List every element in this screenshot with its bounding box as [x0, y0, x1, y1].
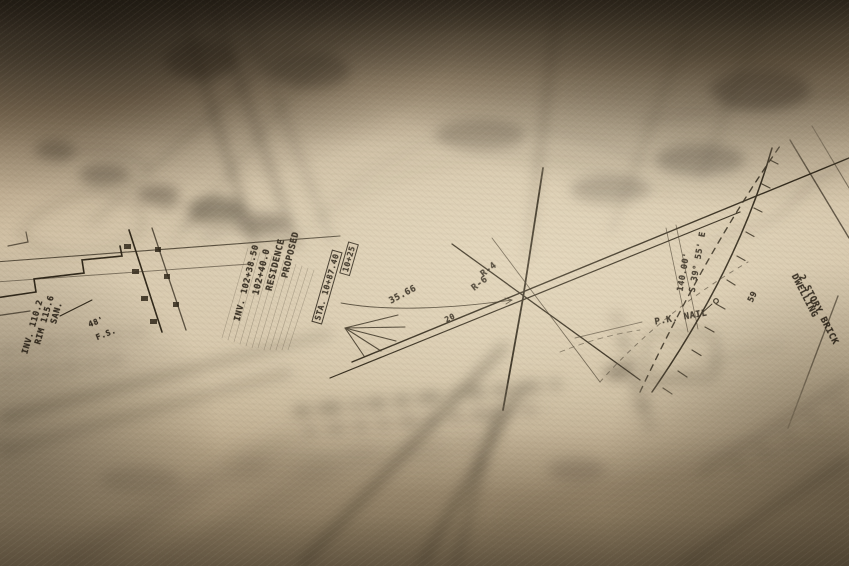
contour-59-label: 59: [746, 290, 760, 304]
foreground-blur-layer: [0, 0, 849, 566]
residence-label: RESIDENCE: [265, 238, 288, 292]
line-r6-label: R-6: [470, 275, 490, 294]
line-r4-label: R-4: [479, 261, 499, 280]
invert-value-label: INV. 102+38.50: [233, 244, 262, 323]
background-blur-layer: [0, 0, 849, 566]
sta-box-label: STA. 10+87.40: [311, 249, 342, 324]
focus-band-layer: [0, 0, 849, 566]
distance-48-label: 48': [87, 315, 105, 329]
paper-grain-overlay: [0, 0, 849, 566]
san-mh-label: SAN.: [49, 301, 65, 325]
vignette-overlay: [0, 0, 849, 566]
survey-map-photo: PROPOSEDRESIDENCE102+40.0INV. 102+38.50S…: [0, 0, 849, 566]
offset-box-label: 10+25: [339, 242, 359, 276]
bearing-label: S 39° 55' E: [688, 231, 709, 294]
number-20-label: 20: [443, 312, 457, 325]
inv-elev-label: INV. 110.2: [20, 299, 45, 356]
dwelling-label: DWELLING: [789, 273, 819, 320]
fs-mark-label: F.S.: [94, 326, 117, 342]
distance-3566-label: 35.66: [388, 284, 419, 307]
pk-nail-label: P.K. NAIL: [654, 308, 708, 327]
station-value-label: 102+40.0: [251, 248, 272, 296]
map-annotations: PROPOSEDRESIDENCE102+40.0INV. 102+38.50S…: [0, 0, 849, 566]
extreme-foreground-blur-layer: [0, 0, 849, 566]
distance-140-label: 140.00': [676, 252, 693, 292]
proposed-label: PROPOSED: [280, 231, 301, 279]
story-brick-label: 2 STORY BRICK: [796, 273, 840, 346]
rim-elev-label: RIM 115.6: [33, 294, 57, 345]
